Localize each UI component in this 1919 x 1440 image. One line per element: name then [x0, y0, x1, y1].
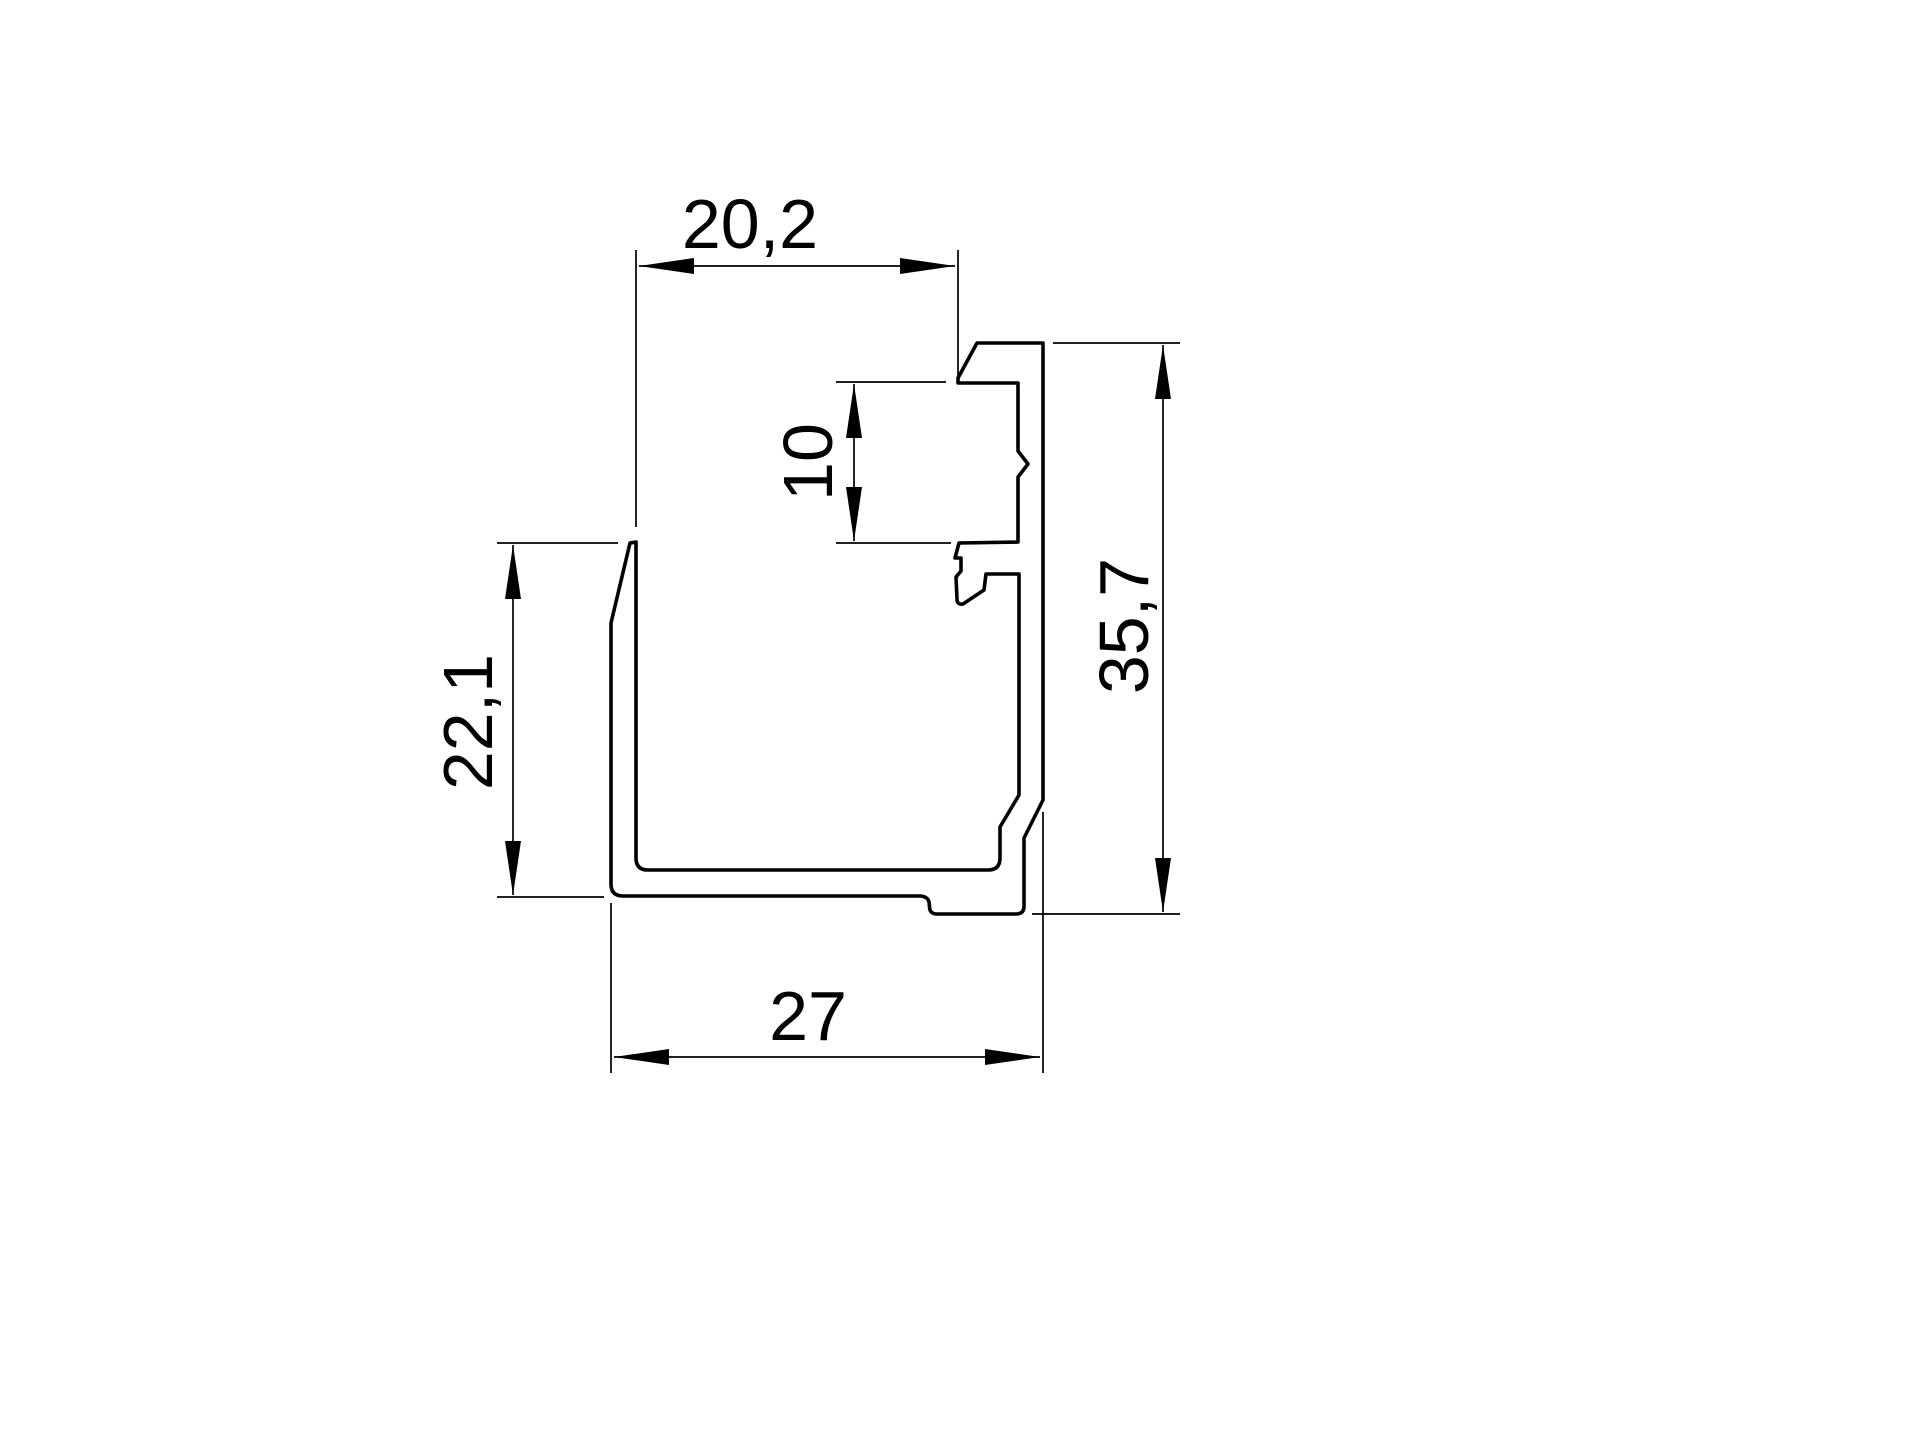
dimension-label-27: 27 — [769, 977, 847, 1055]
dimension-left-wall-height: 22,1 — [429, 543, 618, 897]
dimension-bottom-width: 27 — [611, 812, 1043, 1073]
dimension-label-22-1: 22,1 — [429, 654, 507, 790]
drawing-canvas: 20,2 10 35,7 22,1 27 — [0, 0, 1919, 1440]
dimension-label-20-2: 20,2 — [682, 185, 818, 263]
arrowhead-up-icon — [1155, 345, 1171, 399]
arrowhead-left-icon — [614, 1049, 669, 1065]
arrowhead-up-icon — [505, 545, 521, 599]
profile-drawing: 20,2 10 35,7 22,1 27 — [0, 0, 1919, 1440]
dimension-notch-depth: 10 — [769, 382, 951, 543]
dimension-label-10: 10 — [769, 423, 847, 501]
arrowhead-down-icon — [505, 841, 521, 895]
dimension-label-35-7: 35,7 — [1085, 558, 1163, 694]
arrowhead-right-icon — [900, 258, 955, 274]
arrowhead-up-icon — [846, 384, 862, 438]
arrowhead-down-icon — [1155, 858, 1171, 912]
dimension-overall-height: 35,7 — [1032, 343, 1180, 914]
arrowhead-down-icon — [846, 487, 862, 541]
arrowhead-right-icon — [985, 1049, 1040, 1065]
